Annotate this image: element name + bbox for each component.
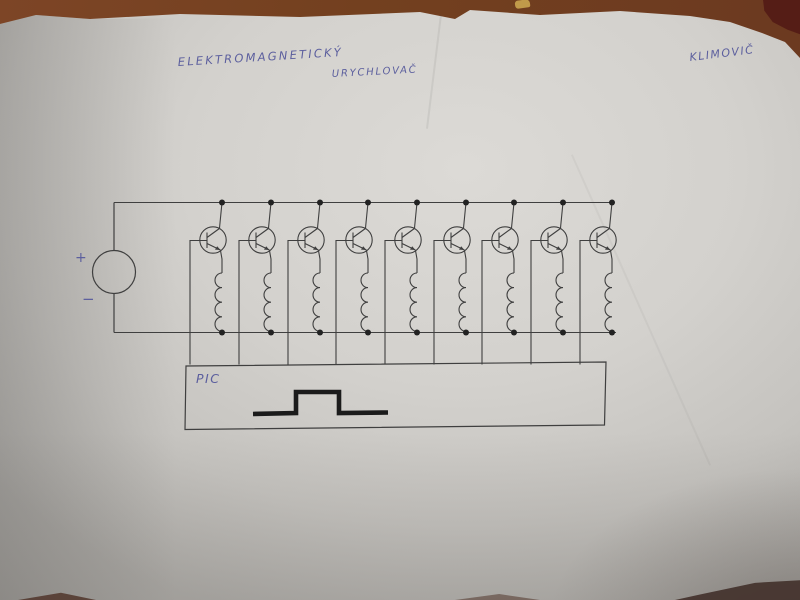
pic-controller-box: [185, 362, 606, 430]
source-minus-label: −: [82, 290, 95, 308]
pic-label: PIC: [196, 371, 220, 386]
transistor-coil-stage: [482, 200, 518, 365]
transistor-coil-stage: [336, 200, 372, 365]
title-line2: URYCHLOVAČ: [331, 63, 417, 80]
transistor-coil-stage: [288, 200, 324, 365]
transistor-coil-stage: [385, 200, 421, 365]
transistor-coil-stage: [434, 200, 470, 365]
pulse-waveform: [253, 392, 388, 414]
source-plus-label: +: [75, 250, 87, 266]
power-source: [93, 203, 136, 333]
transistor-coil-stage: [190, 200, 226, 365]
transistor-coil-stage: [239, 200, 275, 365]
photo-of-schematic: + − PIC ELEKTROMAGNETICKÝ URYCHLOVAČ KLI…: [0, 0, 800, 600]
driver-stages: [190, 200, 616, 365]
title-line1: ELEKTROMAGNETICKÝ: [177, 44, 343, 69]
circuit-schematic: + − PIC ELEKTROMAGNETICKÝ URYCHLOVAČ KLI…: [0, 0, 800, 600]
transistor-coil-stage: [580, 200, 616, 365]
author-signature: KLIMOVIČ: [689, 43, 755, 64]
transistor-coil-stage: [531, 200, 567, 365]
